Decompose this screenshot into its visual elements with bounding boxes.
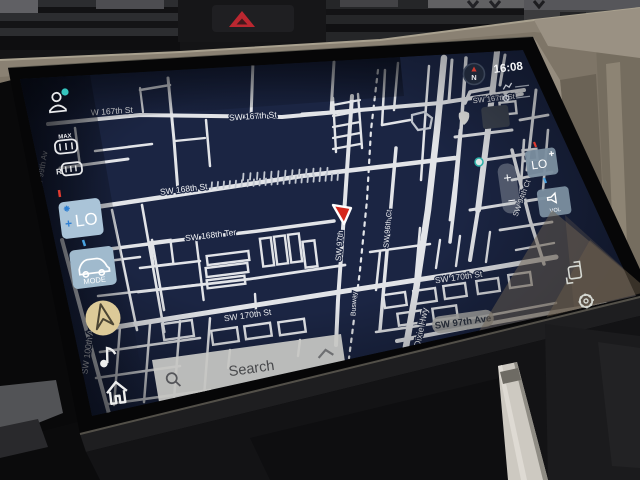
svg-text:N: N xyxy=(471,73,476,82)
svg-text:LO: LO xyxy=(530,156,548,172)
svg-text:LO: LO xyxy=(74,209,99,231)
